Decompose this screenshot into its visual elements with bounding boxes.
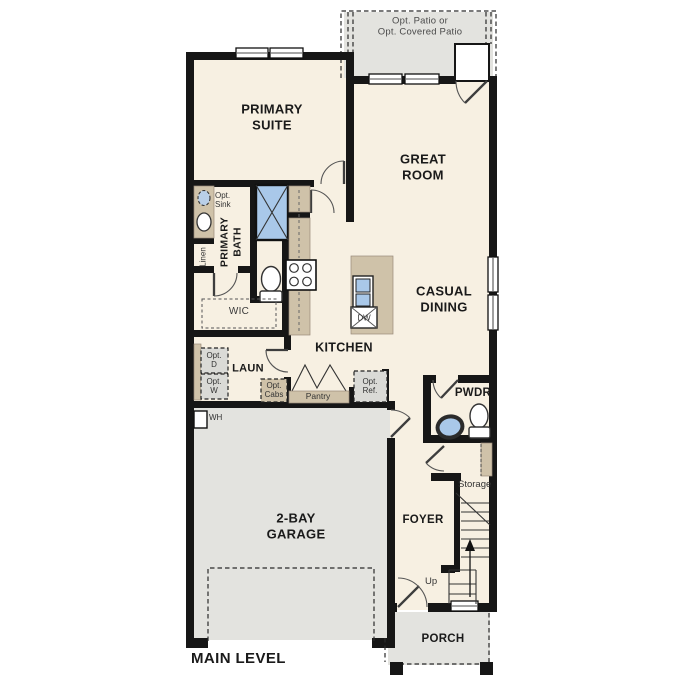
laundry-label: LAUN [232, 362, 264, 375]
kitchen-label: KITCHEN [315, 341, 373, 356]
casual-dining-label: CASUAL DINING [416, 283, 472, 314]
window-great-room [405, 74, 439, 84]
foyer-label: FOYER [402, 514, 443, 528]
dishwasher-label: DW [357, 313, 370, 322]
window-casual-dining [488, 295, 498, 330]
toilet-icon [469, 404, 490, 438]
optional-sink-icon [198, 191, 210, 206]
porch-post [480, 662, 493, 675]
window-primary-suite [236, 48, 268, 58]
range-icon [286, 260, 316, 290]
patio-label: Opt. Patio or Opt. Covered Patio [378, 16, 462, 39]
window-great-room [369, 74, 402, 84]
storage-label: Storage [458, 479, 491, 490]
porch-post [390, 662, 403, 675]
porch-label: PORCH [421, 633, 464, 647]
window-primary-suite [270, 48, 303, 58]
opt-refrigerator-label: Opt. Ref. [362, 377, 377, 395]
opt-sink-label: Opt. Sink [215, 191, 231, 209]
stairs-up-label: Up [425, 576, 437, 587]
island-sink-icon [353, 276, 373, 308]
garage-label: 2-BAY GARAGE [267, 510, 326, 541]
primary-suite-label: PRIMARY SUITE [241, 101, 303, 132]
water-heater-label: WH [209, 413, 222, 422]
window-foyer [451, 601, 478, 611]
great-room-label: GREAT ROOM [400, 151, 446, 182]
pantry-label: Pantry [306, 392, 331, 402]
primary-bath-label: PRIMARY BATH [218, 217, 243, 267]
opt-washer-label: Opt. W [206, 377, 221, 395]
water-heater-icon [194, 411, 207, 428]
toilet-icon [260, 267, 282, 303]
patio-door-alcove [455, 44, 489, 81]
wic-label: WIC [229, 306, 249, 318]
powder-label: PWDR [455, 387, 491, 401]
opt-dryer-label: Opt. D [206, 351, 221, 369]
storage-shelf [481, 443, 492, 476]
plan-title: MAIN LEVEL [191, 650, 286, 668]
window-casual-dining [488, 257, 498, 292]
opt-cabinets-label: Opt. Cabs [265, 381, 284, 399]
shower [256, 185, 288, 240]
sink-icon [197, 213, 211, 231]
linen-label: Linen [198, 247, 207, 267]
floor-plan: Opt. Patio or Opt. Covered Patio PRIMARY… [0, 0, 687, 687]
